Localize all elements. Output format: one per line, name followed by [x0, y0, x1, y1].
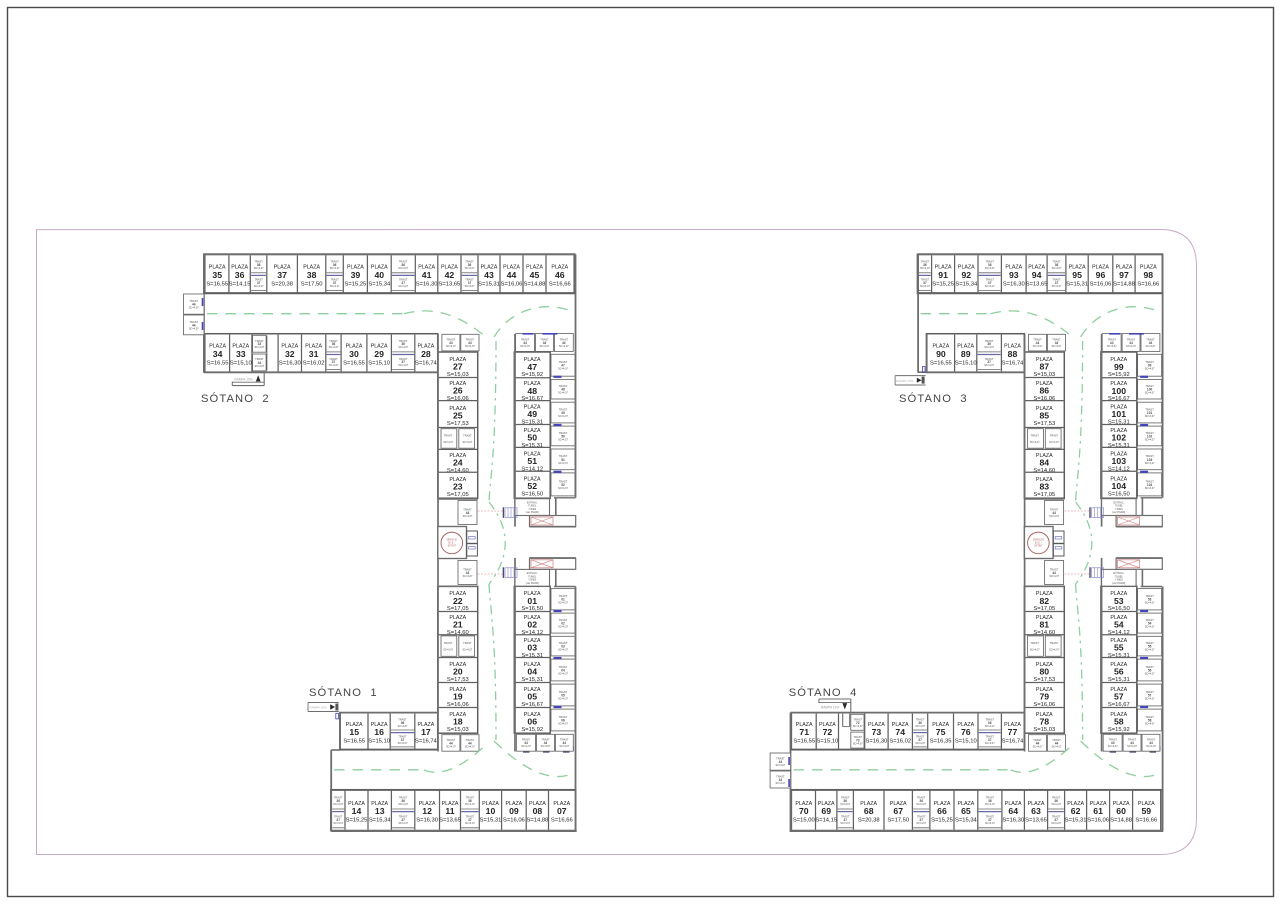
- svg-text:S=15,25: S=15,25: [346, 818, 368, 824]
- svg-text:S=15,92: S=15,92: [521, 727, 543, 733]
- svg-text:SC=4,07: SC=4,07: [254, 346, 264, 349]
- svg-text:21: 21: [453, 620, 463, 630]
- svg-text:S=15,31: S=15,31: [1108, 443, 1130, 449]
- svg-text:78: 78: [1039, 717, 1049, 727]
- svg-text:S=14,88: S=14,88: [1110, 818, 1132, 824]
- svg-text:S=15,34: S=15,34: [369, 818, 392, 824]
- svg-text:SC=4,07: SC=4,07: [465, 267, 475, 270]
- svg-text:77: 77: [1008, 727, 1018, 737]
- svg-text:60: 60: [1116, 806, 1126, 816]
- svg-text:19: 19: [453, 692, 463, 702]
- svg-text:TRAST: TRAST: [463, 433, 472, 437]
- svg-text:55: 55: [1114, 643, 1124, 653]
- svg-text:S=17,05: S=17,05: [1033, 606, 1055, 612]
- svg-text:02: 02: [527, 620, 537, 630]
- svg-text:41: 41: [422, 270, 432, 280]
- svg-text:S=15,10: S=15,10: [368, 739, 390, 745]
- svg-text:SC=4,07: SC=4,07: [398, 803, 408, 806]
- svg-text:SÓTANO 4: SÓTANO 4: [789, 686, 858, 699]
- svg-text:S=15,31: S=15,31: [1066, 281, 1088, 287]
- svg-text:10: 10: [486, 806, 496, 816]
- svg-text:S=17,05: S=17,05: [1033, 492, 1055, 498]
- svg-text:S=15,03: S=15,03: [1033, 372, 1055, 378]
- svg-text:SC=4,07: SC=4,07: [840, 822, 850, 825]
- svg-text:SC=4,07: SC=4,07: [1146, 345, 1156, 348]
- svg-text:S=15,34: S=15,34: [368, 281, 391, 287]
- svg-text:SC=4,07: SC=4,07: [558, 626, 568, 629]
- svg-text:S=16,06: S=16,06: [1033, 702, 1055, 708]
- svg-text:S=15,34: S=15,34: [955, 818, 978, 824]
- svg-text:SC=4,07: SC=4,07: [985, 803, 995, 806]
- svg-text:SC=4,07: SC=4,07: [446, 345, 456, 348]
- svg-text:SC=4,07: SC=4,07: [398, 285, 408, 288]
- svg-text:SC=4,07: SC=4,07: [1145, 672, 1155, 675]
- svg-text:56: 56: [1114, 667, 1124, 677]
- svg-text:81: 81: [1039, 620, 1049, 630]
- svg-text:S=16,67: S=16,67: [521, 702, 543, 708]
- svg-text:46: 46: [555, 270, 565, 280]
- svg-text:89: 89: [961, 349, 971, 359]
- svg-text:SC=4,07: SC=4,07: [775, 782, 785, 785]
- svg-text:S=15,10: S=15,10: [368, 361, 390, 367]
- svg-text:74: 74: [895, 727, 905, 737]
- svg-text:TRAST: TRAST: [444, 641, 453, 645]
- svg-text:SC=4,07: SC=4,07: [775, 764, 785, 767]
- svg-text:SC=4,07: SC=4,07: [463, 515, 473, 518]
- svg-text:SC=4,07: SC=4,07: [446, 745, 456, 748]
- svg-text:SC=4,07: SC=4,07: [465, 745, 475, 748]
- svg-text:S=16,55: S=16,55: [343, 361, 365, 367]
- svg-text:SC=4,07: SC=4,07: [1049, 441, 1059, 444]
- svg-text:15: 15: [349, 727, 359, 737]
- svg-text:SC=4,07: SC=4,07: [984, 346, 994, 349]
- svg-text:S=17,05: S=17,05: [447, 492, 469, 498]
- svg-text:SC=4,07: SC=4,07: [465, 285, 475, 288]
- svg-text:S=15,10: S=15,10: [817, 739, 839, 745]
- svg-text:27: 27: [453, 362, 463, 372]
- svg-text:S=16,06: S=16,06: [447, 396, 469, 402]
- svg-text:95: 95: [1072, 270, 1082, 280]
- svg-text:84: 84: [1039, 458, 1049, 468]
- svg-text:SC=4,07: SC=4,07: [1107, 345, 1117, 348]
- svg-text:S=16,50: S=16,50: [1108, 606, 1130, 612]
- svg-text:S=15,10: S=15,10: [955, 361, 977, 367]
- svg-text:S=16,06: S=16,06: [1087, 818, 1109, 824]
- svg-text:S=15,25: S=15,25: [932, 281, 954, 287]
- svg-text:68: 68: [864, 806, 874, 816]
- svg-text:SC=4,07: SC=4,07: [1145, 487, 1155, 490]
- svg-text:S=16,30: S=16,30: [416, 818, 438, 824]
- svg-text:57: 57: [1114, 692, 1124, 702]
- svg-text:22: 22: [453, 596, 463, 606]
- svg-text:24: 24: [453, 458, 463, 468]
- svg-text:SC=4,07: SC=4,07: [1146, 745, 1156, 748]
- svg-text:SC=4,07: SC=4,07: [558, 392, 568, 395]
- svg-text:42: 42: [445, 270, 455, 280]
- svg-text:12: 12: [422, 806, 432, 816]
- svg-text:11: 11: [445, 806, 454, 816]
- svg-text:53: 53: [1114, 596, 1124, 606]
- svg-text:59: 59: [1141, 806, 1151, 816]
- svg-text:SC=4,07: SC=4,07: [398, 822, 408, 825]
- svg-text:S=16,55: S=16,55: [206, 281, 228, 287]
- svg-text:49: 49: [527, 409, 537, 419]
- svg-text:SC=4,07: SC=4,07: [1145, 602, 1155, 605]
- svg-text:SC=4,07: SC=4,07: [462, 441, 472, 444]
- svg-text:S=15,31: S=15,31: [521, 677, 543, 683]
- svg-text:S=15,00: S=15,00: [793, 818, 815, 824]
- svg-text:TRAST: TRAST: [1050, 433, 1059, 437]
- svg-text:SC=4,07: SC=4,07: [1052, 285, 1062, 288]
- svg-text:SC=4,07: SC=4,07: [1033, 745, 1043, 748]
- svg-text:SC=4,07: SC=4,07: [1049, 515, 1059, 518]
- svg-text:B.I.E. /: B.I.E. /: [448, 543, 455, 545]
- svg-text:S=14,12: S=14,12: [521, 466, 543, 472]
- svg-text:S=16,50: S=16,50: [1108, 491, 1130, 497]
- svg-text:SC=4,07: SC=4,07: [558, 462, 568, 465]
- svg-text:35: 35: [212, 270, 222, 280]
- svg-text:S=16,30: S=16,30: [1002, 818, 1024, 824]
- svg-text:SC=4,07: SC=4,07: [1145, 722, 1155, 725]
- svg-text:S=14,12: S=14,12: [1108, 630, 1130, 636]
- svg-text:S=15,31: S=15,31: [480, 818, 502, 824]
- svg-text:S=16,66: S=16,66: [1135, 818, 1157, 824]
- svg-text:85: 85: [1039, 411, 1049, 421]
- svg-text:S=16,02: S=16,02: [889, 739, 911, 745]
- svg-text:SERVICIO: SERVICIO: [446, 540, 457, 542]
- svg-text:SC=4,07: SC=4,07: [1051, 822, 1061, 825]
- svg-text:SC=4,07: SC=4,07: [558, 415, 568, 418]
- svg-text:SC=4,07: SC=4,07: [398, 742, 408, 745]
- svg-text:TRAST: TRAST: [463, 641, 472, 645]
- svg-text:SC=4,07: SC=4,07: [1049, 649, 1059, 652]
- svg-text:SC=4,07: SC=4,07: [329, 364, 339, 367]
- svg-text:S=17,53: S=17,53: [1033, 677, 1055, 683]
- svg-text:52: 52: [527, 481, 537, 491]
- svg-text:S=15,31: S=15,31: [478, 281, 500, 287]
- svg-text:58: 58: [1114, 717, 1124, 727]
- svg-text:SC=4,07: SC=4,07: [1145, 438, 1155, 441]
- svg-text:06: 06: [527, 717, 537, 727]
- svg-text:36: 36: [235, 270, 245, 280]
- svg-text:S=16,55: S=16,55: [930, 361, 952, 367]
- svg-text:SC=4,07: SC=4,07: [915, 725, 925, 728]
- svg-text:S=14,15: S=14,15: [815, 818, 837, 824]
- svg-text:S=14,60: S=14,60: [1033, 468, 1055, 474]
- svg-text:S=14,60: S=14,60: [1033, 630, 1055, 636]
- svg-text:RAMPA 15%: RAMPA 15%: [821, 705, 839, 709]
- svg-text:B.I.E. /: B.I.E. /: [1035, 543, 1042, 545]
- svg-text:SC=4,07: SC=4,07: [1030, 649, 1040, 652]
- svg-text:39: 39: [351, 270, 361, 280]
- svg-text:S=17,50: S=17,50: [887, 818, 909, 824]
- svg-text:SC=4,07: SC=4,07: [463, 575, 473, 578]
- svg-text:SC=4,07: SC=4,07: [540, 345, 550, 348]
- svg-text:80: 80: [1039, 667, 1049, 677]
- svg-text:SC=4,07: SC=4,07: [398, 346, 408, 349]
- svg-text:04: 04: [527, 667, 537, 677]
- svg-text:SC=4,07: SC=4,07: [559, 745, 569, 748]
- svg-text:SÓTANO 2: SÓTANO 2: [201, 392, 270, 405]
- svg-text:44: 44: [507, 270, 517, 280]
- svg-text:S=14,12: S=14,12: [1108, 466, 1130, 472]
- svg-text:30: 30: [349, 349, 359, 359]
- svg-text:S=16,74: S=16,74: [1002, 739, 1025, 745]
- svg-text:RAMPA 15%: RAMPA 15%: [309, 706, 326, 710]
- svg-text:90: 90: [936, 349, 946, 359]
- svg-text:SC=4,07: SC=4,07: [1145, 649, 1155, 652]
- svg-text:16: 16: [374, 727, 384, 737]
- svg-text:S=14,60: S=14,60: [447, 468, 469, 474]
- svg-text:26: 26: [453, 386, 463, 396]
- svg-text:(ver PGI09): (ver PGI09): [526, 511, 539, 514]
- svg-text:RAMPA 15%: RAMPA 15%: [234, 377, 252, 381]
- svg-text:SC=4,07: SC=4,07: [840, 803, 850, 806]
- svg-text:SC=4,07: SC=4,07: [520, 345, 530, 348]
- svg-text:97: 97: [1119, 270, 1129, 280]
- svg-text:TRAST: TRAST: [1050, 641, 1059, 645]
- svg-text:91: 91: [938, 270, 948, 280]
- svg-text:TRAST: TRAST: [1030, 641, 1039, 645]
- svg-text:S=16,50: S=16,50: [521, 606, 543, 612]
- svg-text:SC=4,07: SC=4,07: [1127, 745, 1137, 748]
- svg-text:S=20,38: S=20,38: [858, 818, 880, 824]
- svg-text:29: 29: [374, 349, 384, 359]
- svg-text:SC=4,07: SC=4,07: [1145, 368, 1155, 371]
- svg-text:S=16,67: S=16,67: [1108, 396, 1130, 402]
- svg-text:SC=4,07: SC=4,07: [558, 672, 568, 675]
- svg-text:28: 28: [421, 349, 431, 359]
- svg-text:RAMPA 15%: RAMPA 15%: [896, 379, 913, 383]
- svg-text:SC=4,07: SC=4,07: [853, 743, 863, 746]
- svg-text:SC=4,07: SC=4,07: [521, 745, 531, 748]
- svg-text:S=16,55: S=16,55: [793, 739, 815, 745]
- svg-text:S=16,30: S=16,30: [279, 361, 301, 367]
- svg-text:S=13,65: S=13,65: [439, 818, 461, 824]
- svg-text:SC=4,07: SC=4,07: [465, 822, 475, 825]
- svg-text:S=16,66: S=16,66: [551, 818, 573, 824]
- svg-text:62: 62: [1071, 806, 1081, 816]
- svg-text:99: 99: [1114, 362, 1124, 372]
- svg-text:SC=4,07: SC=4,07: [465, 803, 475, 806]
- svg-text:94: 94: [1032, 270, 1042, 280]
- svg-text:S=14,12: S=14,12: [521, 630, 543, 636]
- svg-text:SC=4,07: SC=4,07: [541, 745, 551, 748]
- svg-text:S=15,31: S=15,31: [521, 653, 543, 659]
- svg-text:S=15,25: S=15,25: [345, 281, 367, 287]
- svg-text:SC=4,07: SC=4,07: [1108, 745, 1118, 748]
- svg-text:SC=4,07: SC=4,07: [398, 364, 408, 367]
- svg-text:S=14,60: S=14,60: [447, 630, 469, 636]
- svg-text:09: 09: [509, 806, 519, 816]
- svg-text:SC=4,07: SC=4,07: [985, 285, 995, 288]
- svg-text:S=15,92: S=15,92: [1108, 372, 1130, 378]
- svg-text:13: 13: [375, 806, 385, 816]
- svg-text:73: 73: [872, 727, 882, 737]
- svg-text:S=17,05: S=17,05: [447, 606, 469, 612]
- svg-text:S=15,03: S=15,03: [447, 727, 469, 733]
- svg-text:S=15,03: S=15,03: [447, 372, 469, 378]
- svg-text:34: 34: [213, 349, 223, 359]
- svg-text:SC=4,07: SC=4,07: [558, 438, 568, 441]
- svg-text:S=16,30: S=16,30: [866, 739, 888, 745]
- svg-text:S=13,65: S=13,65: [1026, 281, 1048, 287]
- svg-text:23: 23: [453, 482, 463, 492]
- svg-text:45: 45: [530, 270, 540, 280]
- svg-text:31: 31: [309, 349, 319, 359]
- svg-text:EXTINT: EXTINT: [448, 546, 457, 548]
- svg-text:SC=4,07: SC=4,07: [920, 267, 930, 270]
- svg-text:S=16,66: S=16,66: [549, 281, 571, 287]
- svg-text:(ver PGI09): (ver PGI09): [1112, 582, 1125, 585]
- svg-text:S=16,30: S=16,30: [1003, 281, 1025, 287]
- svg-text:SC=4,07: SC=4,07: [1145, 392, 1155, 395]
- svg-text:S=16,35: S=16,35: [930, 739, 952, 745]
- svg-text:(ver PGI09): (ver PGI09): [1112, 511, 1125, 514]
- svg-text:S=15,31: S=15,31: [521, 443, 543, 449]
- svg-text:S=16,50: S=16,50: [521, 491, 543, 497]
- svg-text:SC=4,07: SC=4,07: [1052, 345, 1062, 348]
- svg-text:S=16,06: S=16,06: [503, 818, 525, 824]
- svg-text:61: 61: [1093, 806, 1103, 816]
- svg-text:S=13,65: S=13,65: [1025, 818, 1047, 824]
- svg-text:S=15,10: S=15,10: [230, 361, 252, 367]
- svg-text:SC=4,07: SC=4,07: [920, 285, 930, 288]
- svg-text:64: 64: [1008, 806, 1018, 816]
- svg-text:SC=4,07: SC=4,07: [398, 725, 408, 728]
- svg-text:S=15,31: S=15,31: [1108, 677, 1130, 683]
- svg-text:82: 82: [1039, 596, 1049, 606]
- svg-text:S=14,15: S=14,15: [229, 281, 251, 287]
- svg-text:SC=4,07: SC=4,07: [985, 267, 995, 270]
- svg-text:SC=4,07: SC=4,07: [1049, 575, 1059, 578]
- svg-text:75: 75: [936, 727, 946, 737]
- svg-text:SC=4,07: SC=4,07: [1033, 345, 1043, 348]
- svg-text:S=16,06: S=16,06: [447, 702, 469, 708]
- svg-text:37: 37: [277, 270, 287, 280]
- svg-text:54: 54: [1114, 620, 1124, 630]
- svg-text:SC=4,07: SC=4,07: [189, 327, 199, 330]
- svg-text:S=17,53: S=17,53: [1033, 421, 1055, 427]
- svg-text:SC=4,07: SC=4,07: [1145, 697, 1155, 700]
- svg-text:SÓTANO 1: SÓTANO 1: [309, 686, 378, 699]
- svg-text:104: 104: [1112, 481, 1127, 491]
- svg-text:SC=4,07: SC=4,07: [443, 441, 453, 444]
- svg-text:SC=4,07: SC=4,07: [189, 307, 199, 310]
- svg-text:SC=4,07: SC=4,07: [558, 487, 568, 490]
- svg-text:S=16,66: S=16,66: [1137, 281, 1159, 287]
- svg-text:32: 32: [285, 349, 295, 359]
- svg-text:S=17,53: S=17,53: [447, 677, 469, 683]
- svg-text:S=16,74: S=16,74: [1002, 361, 1025, 367]
- svg-text:S=13,65: S=13,65: [439, 281, 461, 287]
- svg-text:SC=4,07: SC=4,07: [558, 697, 568, 700]
- svg-text:05: 05: [527, 692, 537, 702]
- svg-text:EXTINT: EXTINT: [1034, 546, 1043, 548]
- svg-text:96: 96: [1096, 270, 1106, 280]
- svg-text:SC=4,07: SC=4,07: [1145, 462, 1155, 465]
- svg-text:48: 48: [527, 386, 537, 396]
- svg-text:100: 100: [1112, 386, 1127, 396]
- svg-text:93: 93: [1009, 270, 1019, 280]
- svg-text:83: 83: [1039, 482, 1049, 492]
- svg-text:S=14,88: S=14,88: [1113, 281, 1135, 287]
- svg-text:88: 88: [1008, 349, 1018, 359]
- svg-text:S=16,67: S=16,67: [521, 396, 543, 402]
- svg-text:S=16,67: S=16,67: [1108, 702, 1130, 708]
- svg-text:SC=4,07: SC=4,07: [330, 285, 340, 288]
- svg-text:S=16,06: S=16,06: [1090, 281, 1112, 287]
- svg-text:S=16,74: S=16,74: [415, 739, 438, 745]
- svg-text:SC=4,07: SC=4,07: [465, 345, 475, 348]
- svg-text:S=16,02: S=16,02: [303, 361, 325, 367]
- svg-text:S=15,92: S=15,92: [1108, 727, 1130, 733]
- svg-text:SC=4,07: SC=4,07: [329, 346, 339, 349]
- svg-text:72: 72: [823, 727, 833, 737]
- svg-text:SC=4,07: SC=4,07: [254, 285, 264, 288]
- svg-text:S=16,74: S=16,74: [415, 361, 438, 367]
- svg-text:69: 69: [821, 806, 831, 816]
- svg-text:98: 98: [1143, 270, 1153, 280]
- svg-text:92: 92: [961, 270, 971, 280]
- svg-text:43: 43: [484, 270, 494, 280]
- svg-text:S=15,31: S=15,31: [521, 420, 543, 426]
- svg-text:S=15,31: S=15,31: [1108, 653, 1130, 659]
- svg-text:S=15,31: S=15,31: [1108, 420, 1130, 426]
- svg-text:S=16,06: S=16,06: [1033, 396, 1055, 402]
- svg-text:08: 08: [533, 806, 543, 816]
- svg-text:SC=4,07: SC=4,07: [443, 649, 453, 652]
- svg-text:SC=4,07: SC=4,07: [916, 822, 926, 825]
- svg-text:67: 67: [893, 806, 903, 816]
- svg-text:SERVICIO: SERVICIO: [1033, 540, 1044, 542]
- svg-text:S=15,31: S=15,31: [1065, 818, 1087, 824]
- svg-text:SC=4,07: SC=4,07: [1126, 345, 1136, 348]
- svg-text:S=16,55: S=16,55: [207, 361, 229, 367]
- svg-text:18: 18: [453, 717, 463, 727]
- svg-text:S=16,55: S=16,55: [343, 739, 365, 745]
- svg-text:SC=4,07: SC=4,07: [558, 602, 568, 605]
- svg-text:79: 79: [1039, 692, 1049, 702]
- svg-text:01: 01: [527, 596, 537, 606]
- svg-text:S=17,53: S=17,53: [447, 421, 469, 427]
- svg-text:S=14,88: S=14,88: [527, 818, 549, 824]
- svg-text:SC=4,07: SC=4,07: [985, 725, 995, 728]
- svg-text:SC=4,07: SC=4,07: [984, 364, 994, 367]
- svg-text:SC=4,07: SC=4,07: [1145, 415, 1155, 418]
- svg-text:SC=4,07: SC=4,07: [985, 822, 995, 825]
- svg-text:33: 33: [236, 349, 246, 359]
- svg-text:S=20,38: S=20,38: [271, 281, 293, 287]
- svg-text:76: 76: [961, 727, 971, 737]
- svg-text:SC=4,07: SC=4,07: [254, 365, 264, 368]
- svg-text:SC=4,07: SC=4,07: [558, 722, 568, 725]
- svg-text:(ver PGI09): (ver PGI09): [526, 582, 539, 585]
- svg-text:47: 47: [527, 362, 537, 372]
- svg-text:65: 65: [961, 806, 971, 816]
- svg-text:SC=4,07: SC=4,07: [333, 822, 343, 825]
- svg-text:SC=4,07: SC=4,07: [462, 649, 472, 652]
- svg-text:TRAST: TRAST: [444, 433, 453, 437]
- svg-text:S=17,50: S=17,50: [301, 281, 323, 287]
- svg-text:101: 101: [1112, 409, 1127, 419]
- svg-text:51: 51: [527, 456, 537, 466]
- svg-text:17: 17: [421, 727, 431, 737]
- svg-text:TRAST: TRAST: [1030, 433, 1039, 437]
- svg-text:SC=4,07: SC=4,07: [1145, 626, 1155, 629]
- svg-text:SC=4,07: SC=4,07: [558, 368, 568, 371]
- svg-text:03: 03: [527, 643, 537, 653]
